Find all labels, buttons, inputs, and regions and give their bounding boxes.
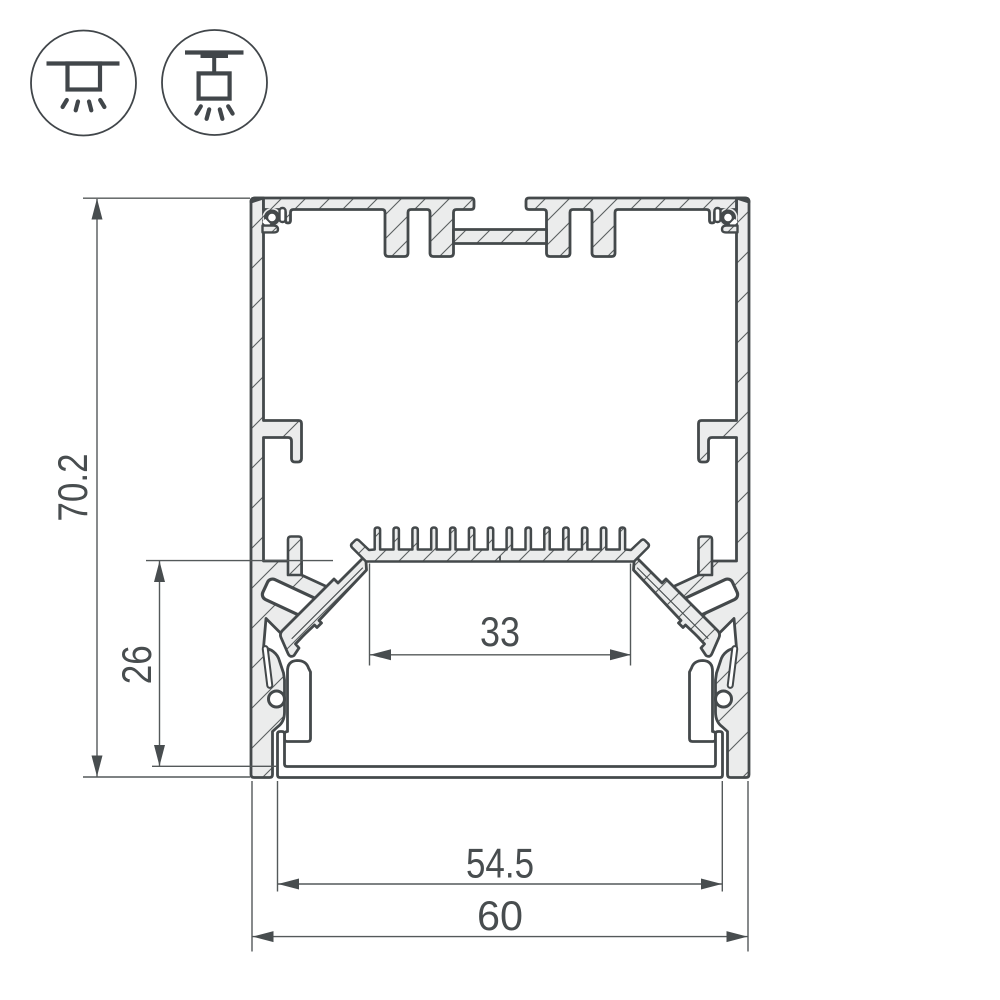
- svg-text:26: 26: [113, 645, 160, 684]
- svg-text:33: 33: [480, 608, 520, 655]
- svg-text:60: 60: [477, 892, 523, 939]
- svg-text:70.2: 70.2: [49, 454, 96, 522]
- svg-text:54.5: 54.5: [466, 840, 534, 887]
